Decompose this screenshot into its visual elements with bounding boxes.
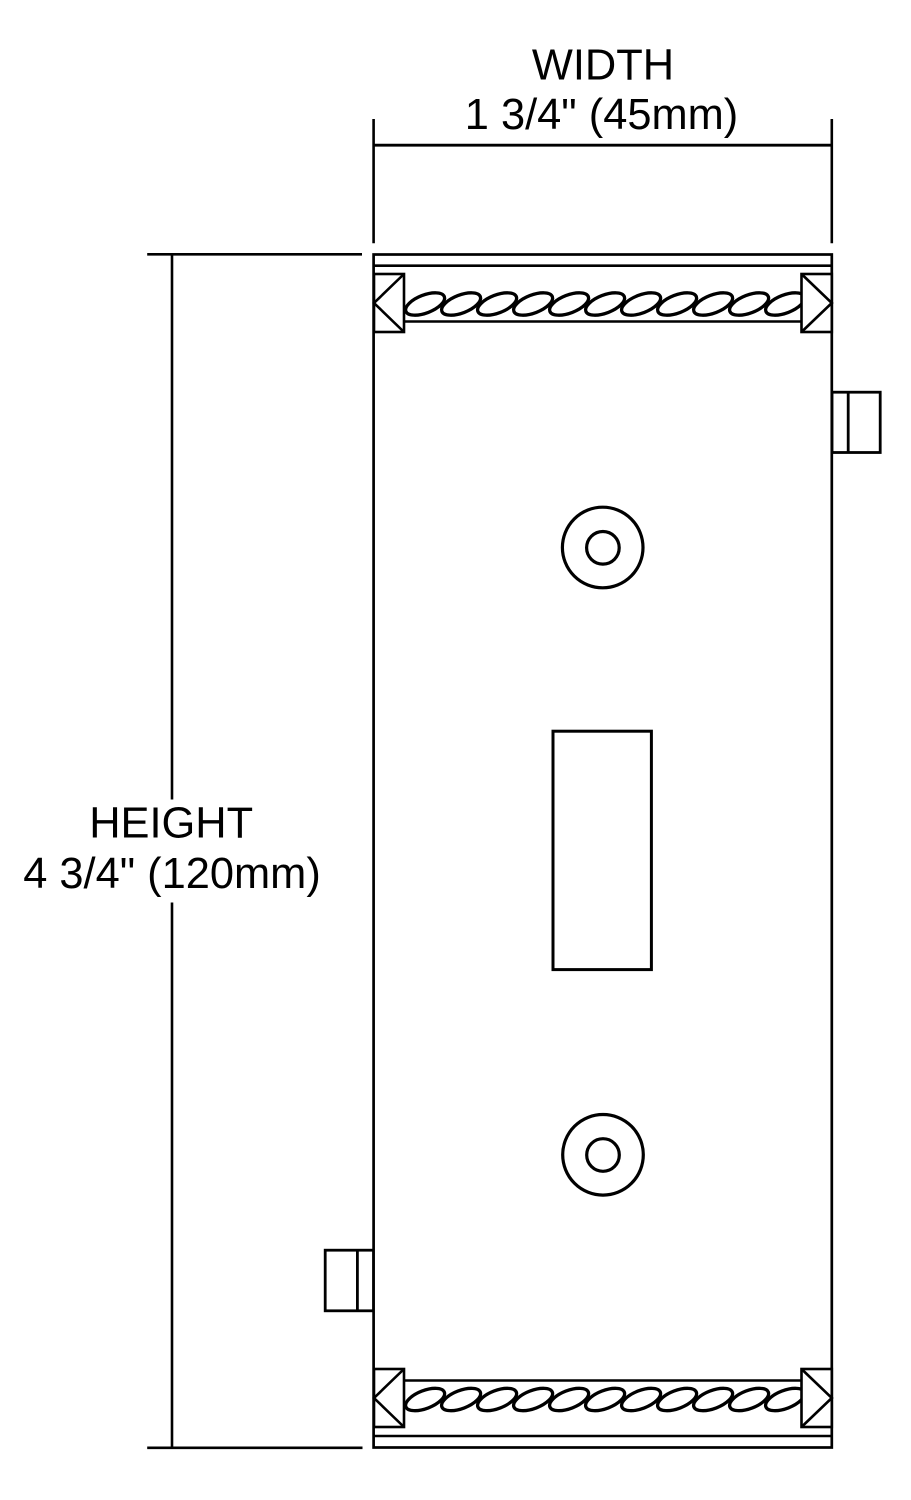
svg-text:WIDTH: WIDTH: [532, 42, 674, 90]
svg-text:HEIGHT: HEIGHT: [89, 800, 253, 848]
svg-text:1 3/4" (45mm): 1 3/4" (45mm): [465, 91, 738, 139]
svg-text:4 3/4" (120mm): 4 3/4" (120mm): [23, 850, 321, 898]
